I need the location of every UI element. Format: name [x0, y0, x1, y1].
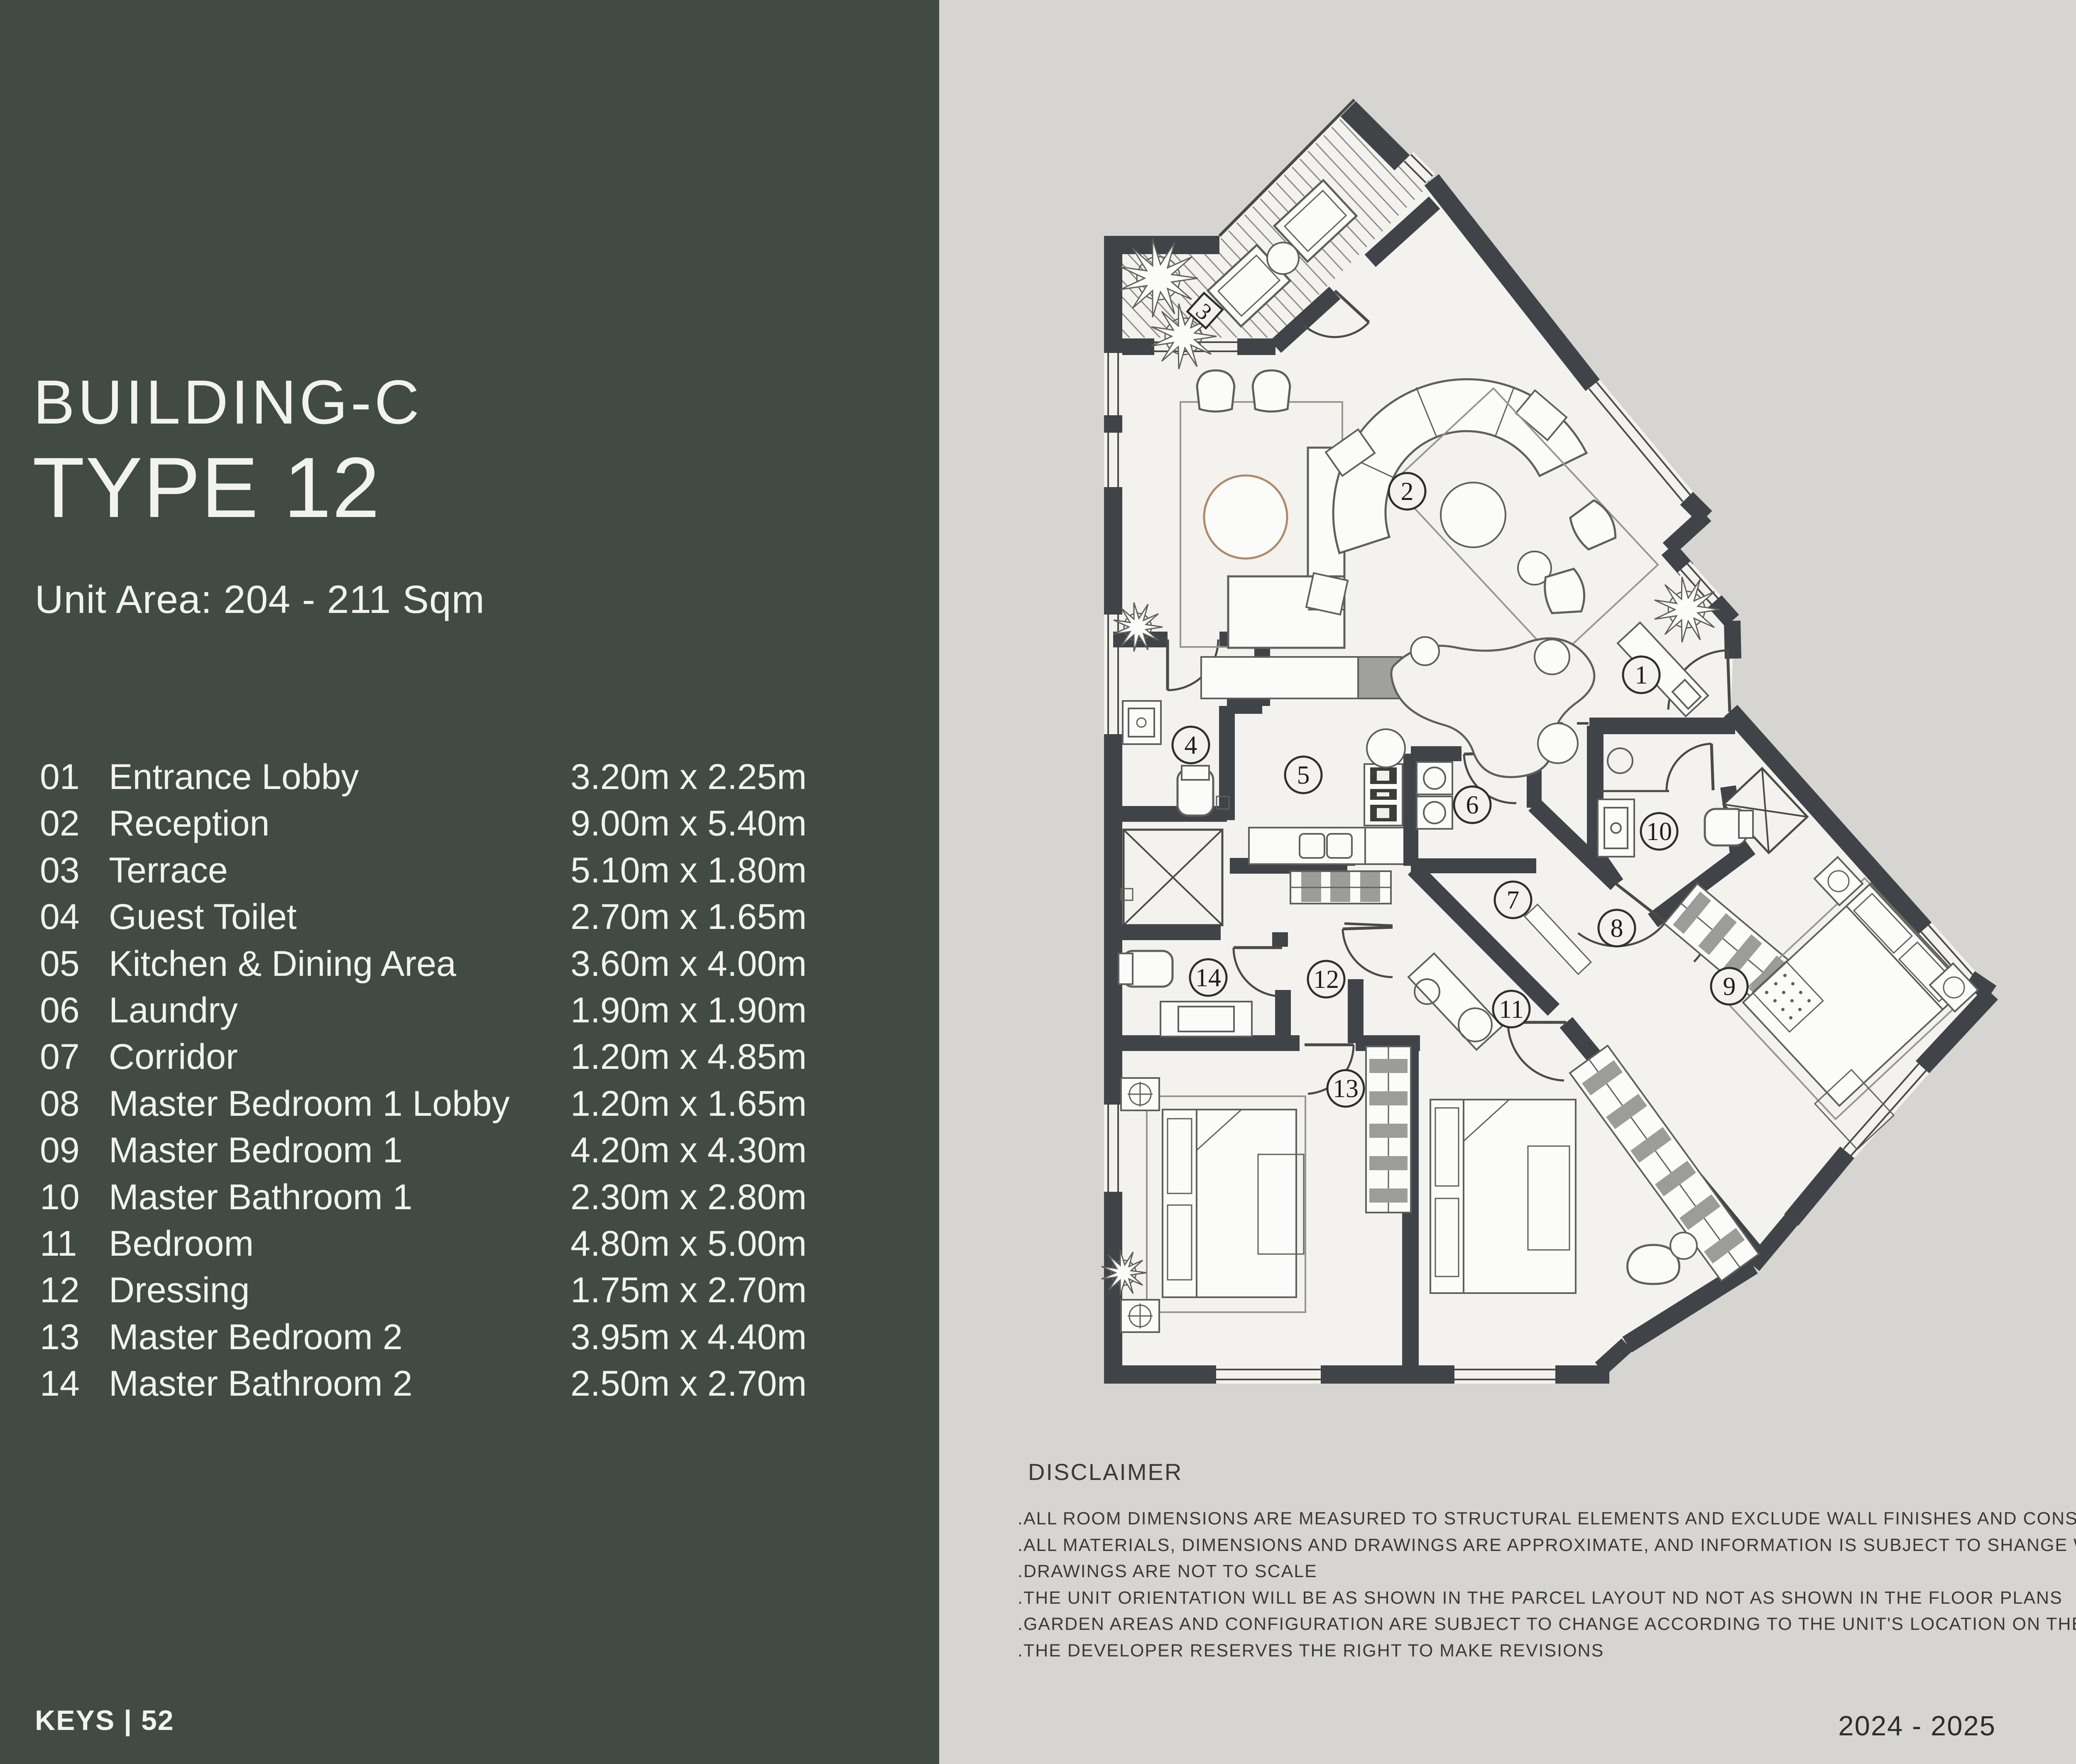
svg-text:7: 7 — [1507, 886, 1520, 914]
svg-text:6: 6 — [1466, 791, 1479, 819]
svg-text:1: 1 — [1635, 661, 1648, 689]
svg-text:12: 12 — [1313, 965, 1339, 994]
svg-text:10: 10 — [1646, 818, 1672, 846]
svg-text:4: 4 — [1185, 731, 1197, 759]
svg-text:2: 2 — [1401, 478, 1414, 506]
svg-text:5: 5 — [1297, 761, 1310, 789]
svg-text:13: 13 — [1333, 1075, 1359, 1103]
svg-text:11: 11 — [1499, 995, 1524, 1024]
svg-text:9: 9 — [1723, 973, 1736, 1001]
svg-text:14: 14 — [1195, 964, 1221, 992]
svg-text:8: 8 — [1611, 914, 1623, 943]
